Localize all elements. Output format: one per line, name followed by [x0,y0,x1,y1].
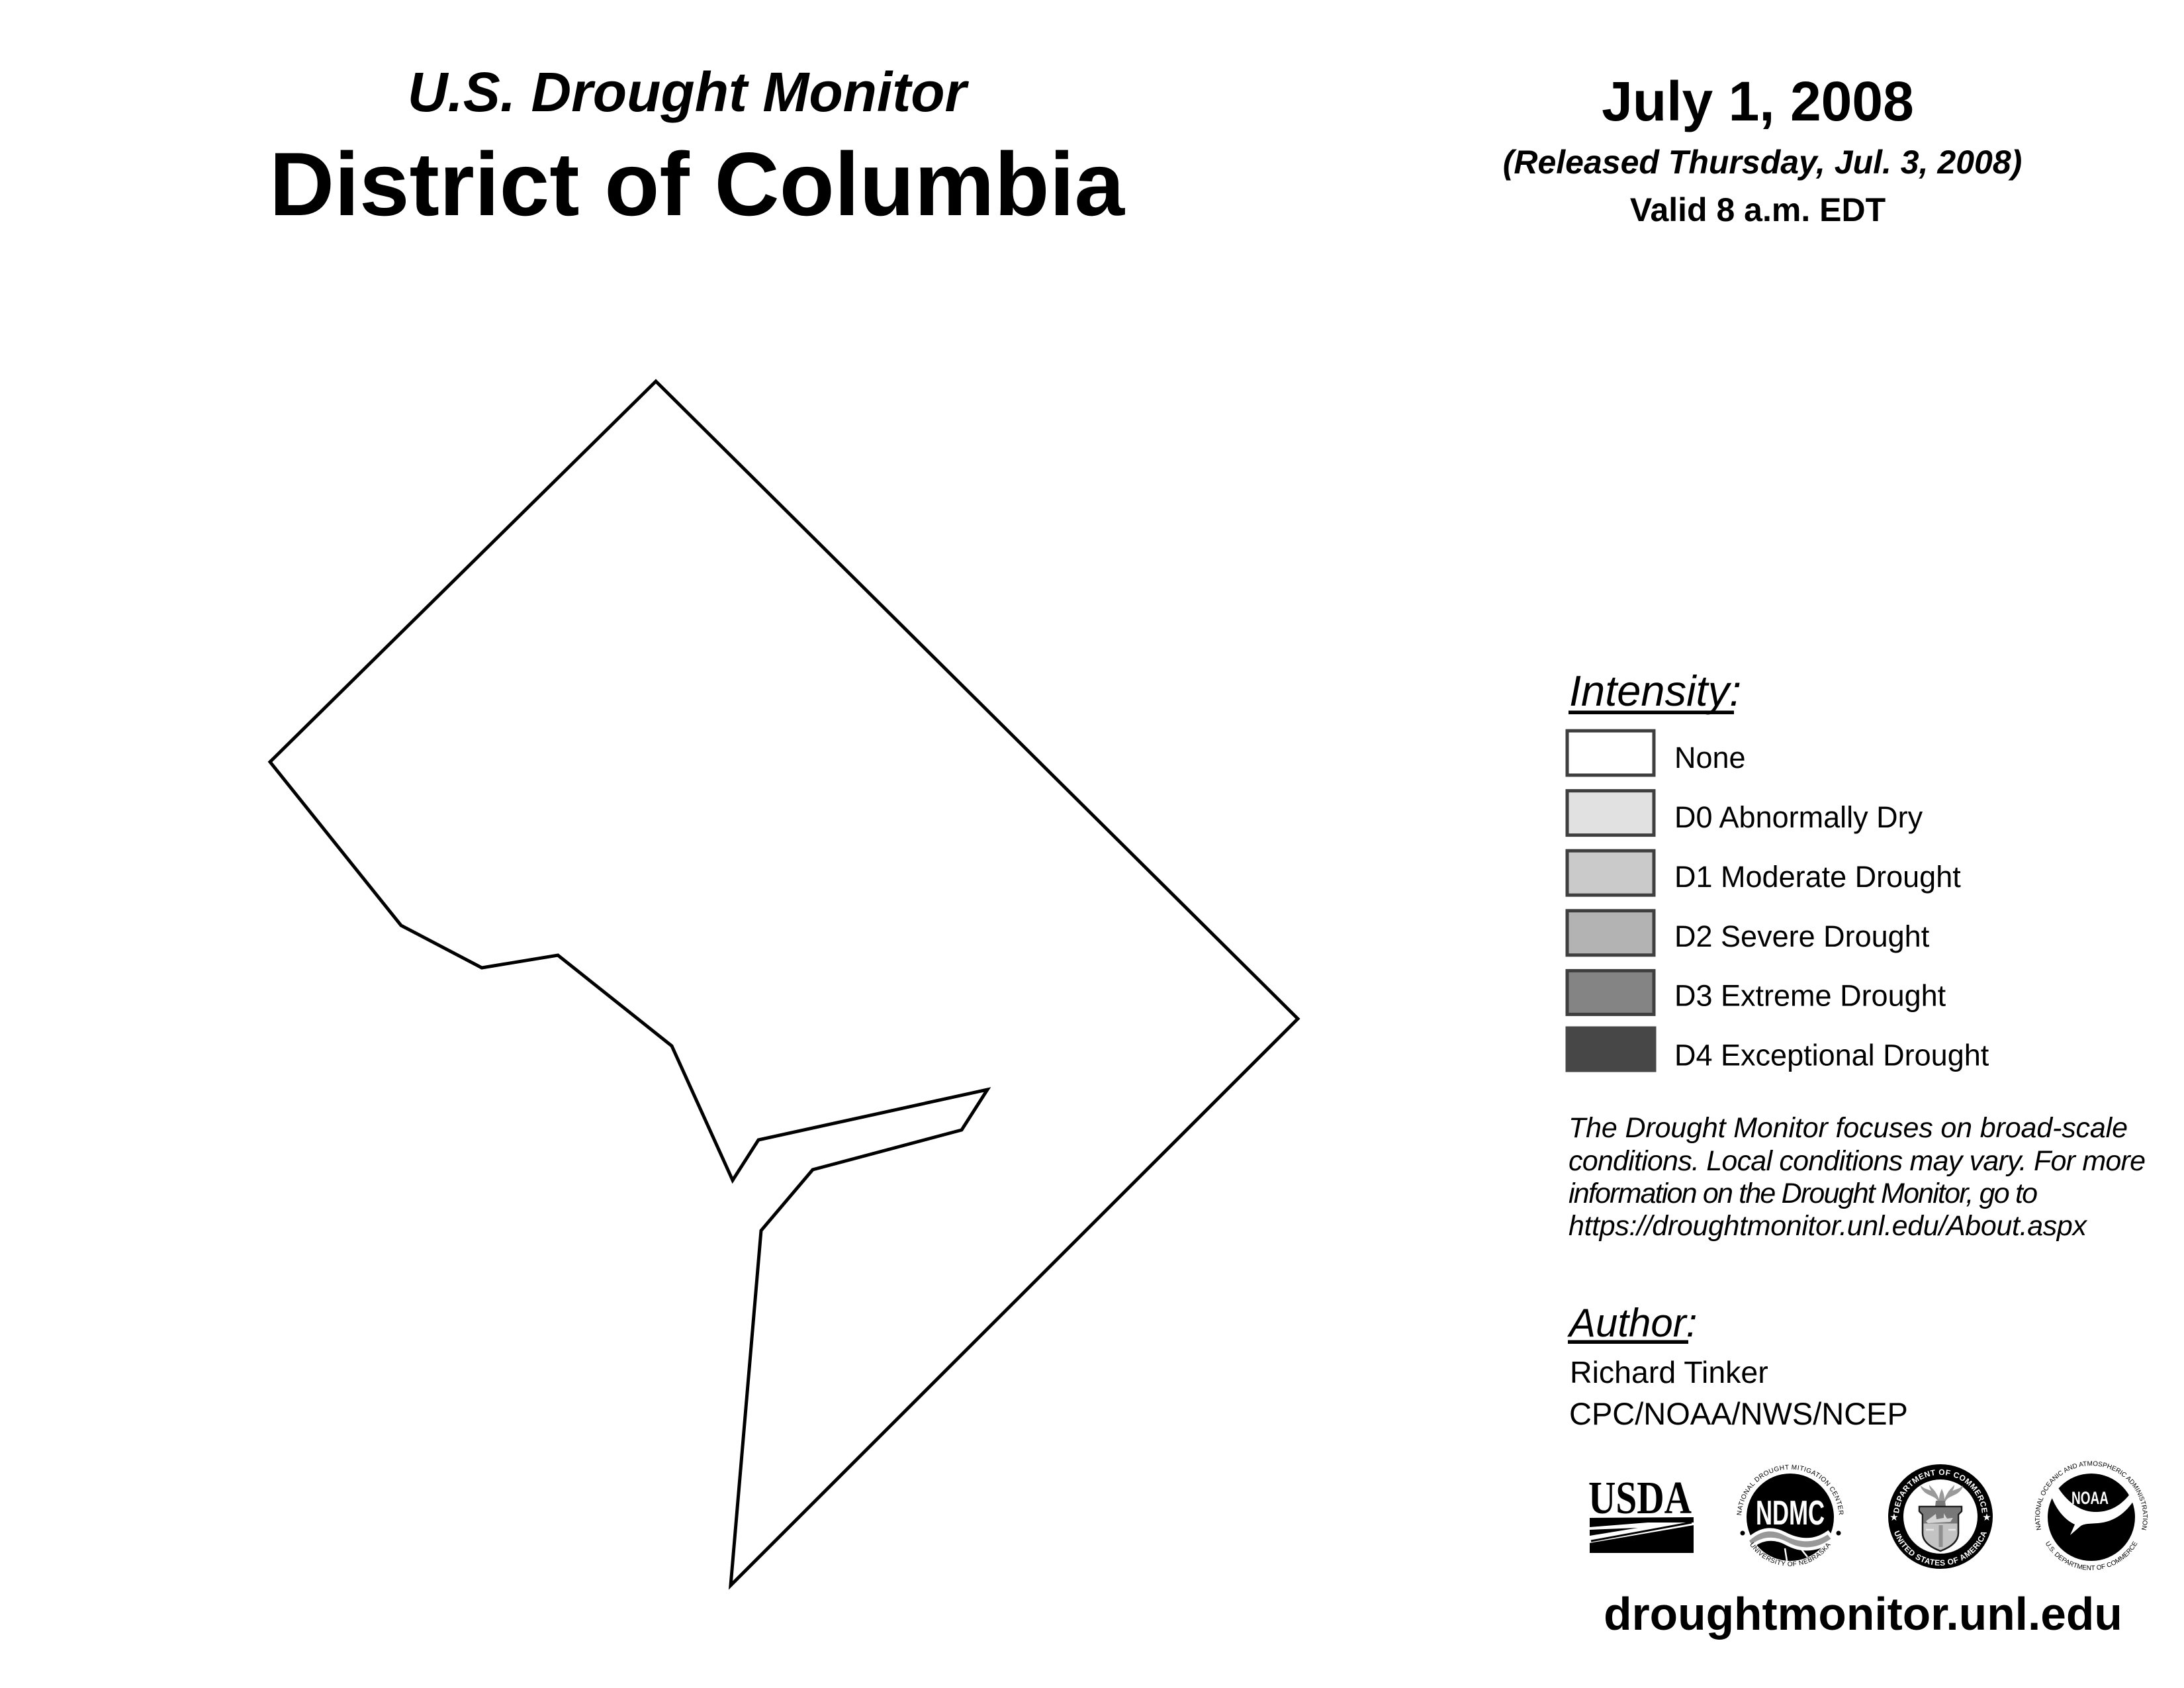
svg-text:Richard Tinker: Richard Tinker [1570,1355,1768,1389]
svg-text:U.S. Drought Monitor: U.S. Drought Monitor [408,61,970,123]
svg-text:District of Columbia: District of Columbia [269,134,1125,234]
svg-text:NOAA: NOAA [2071,1488,2109,1508]
svg-text:None: None [1674,741,1746,774]
svg-text:D2 Severe Drought: D2 Severe Drought [1674,919,1930,953]
svg-text:D4 Exceptional Drought: D4 Exceptional Drought [1674,1039,1989,1072]
svg-text:Valid 8 a.m. EDT: Valid 8 a.m. EDT [1630,191,1886,228]
svg-text:NDMC: NDMC [1756,1494,1825,1532]
svg-text:D1 Moderate Drought: D1 Moderate Drought [1674,860,1961,894]
svg-text:CPC/NOAA/NWS/NCEP: CPC/NOAA/NWS/NCEP [1569,1396,1908,1431]
svg-text:★: ★ [1889,1512,1898,1523]
svg-text:Intensity:: Intensity: [1569,667,1741,715]
svg-text:D0 Abnormally Dry: D0 Abnormally Dry [1674,800,1923,834]
svg-text:USDA: USDA [1588,1473,1692,1524]
svg-text:Author:: Author: [1567,1301,1697,1345]
svg-text:(Released Thursday, Jul. 3, 20: (Released Thursday, Jul. 3, 2008) [1503,144,2023,181]
svg-text:conditions. Local conditions m: conditions. Local conditions may vary. F… [1569,1145,2146,1177]
svg-text:The Drought Monitor focuses on: The Drought Monitor focuses on broad-sca… [1569,1112,2128,1144]
svg-text:droughtmonitor.unl.edu: droughtmonitor.unl.edu [1604,1588,2122,1640]
svg-text:★: ★ [1982,1512,1991,1523]
svg-text:https://droughtmonitor.unl.edu: https://droughtmonitor.unl.edu/About.asp… [1569,1210,2088,1242]
svg-text:July 1, 2008: July 1, 2008 [1602,70,1914,132]
svg-text:D3 Extreme Drought: D3 Extreme Drought [1674,979,1946,1013]
svg-text:information on the Drought Mon: information on the Drought Monitor, go t… [1569,1178,2038,1209]
